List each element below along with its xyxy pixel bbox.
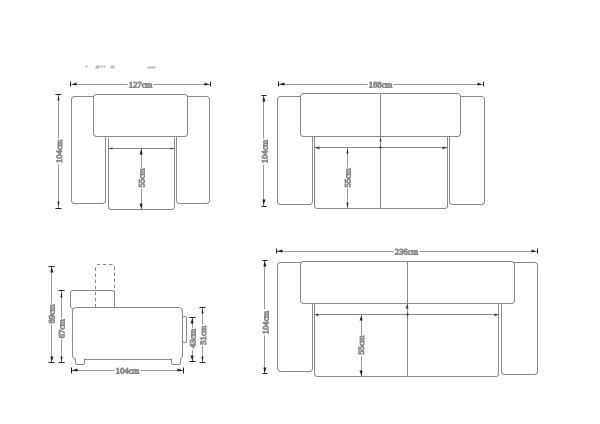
svg-text:89cm: 89cm bbox=[47, 304, 57, 323]
svg-text:51cm: 51cm bbox=[198, 325, 208, 344]
svg-text:104cm: 104cm bbox=[54, 139, 64, 163]
svg-text:55cm: 55cm bbox=[137, 168, 147, 187]
svg-text:104cm: 104cm bbox=[259, 140, 269, 164]
svg-text:236cm: 236cm bbox=[395, 247, 419, 257]
svg-text:188cm: 188cm bbox=[369, 80, 393, 90]
svg-text:104cm: 104cm bbox=[260, 311, 270, 335]
svg-text:55cm: 55cm bbox=[343, 168, 353, 187]
svg-text:104cm: 104cm bbox=[116, 366, 140, 376]
svg-text:43cm: 43cm bbox=[187, 329, 197, 348]
svg-text:55cm: 55cm bbox=[356, 335, 366, 354]
svg-text:67cm: 67cm bbox=[57, 319, 67, 338]
svg-text:127cm: 127cm bbox=[129, 80, 153, 90]
